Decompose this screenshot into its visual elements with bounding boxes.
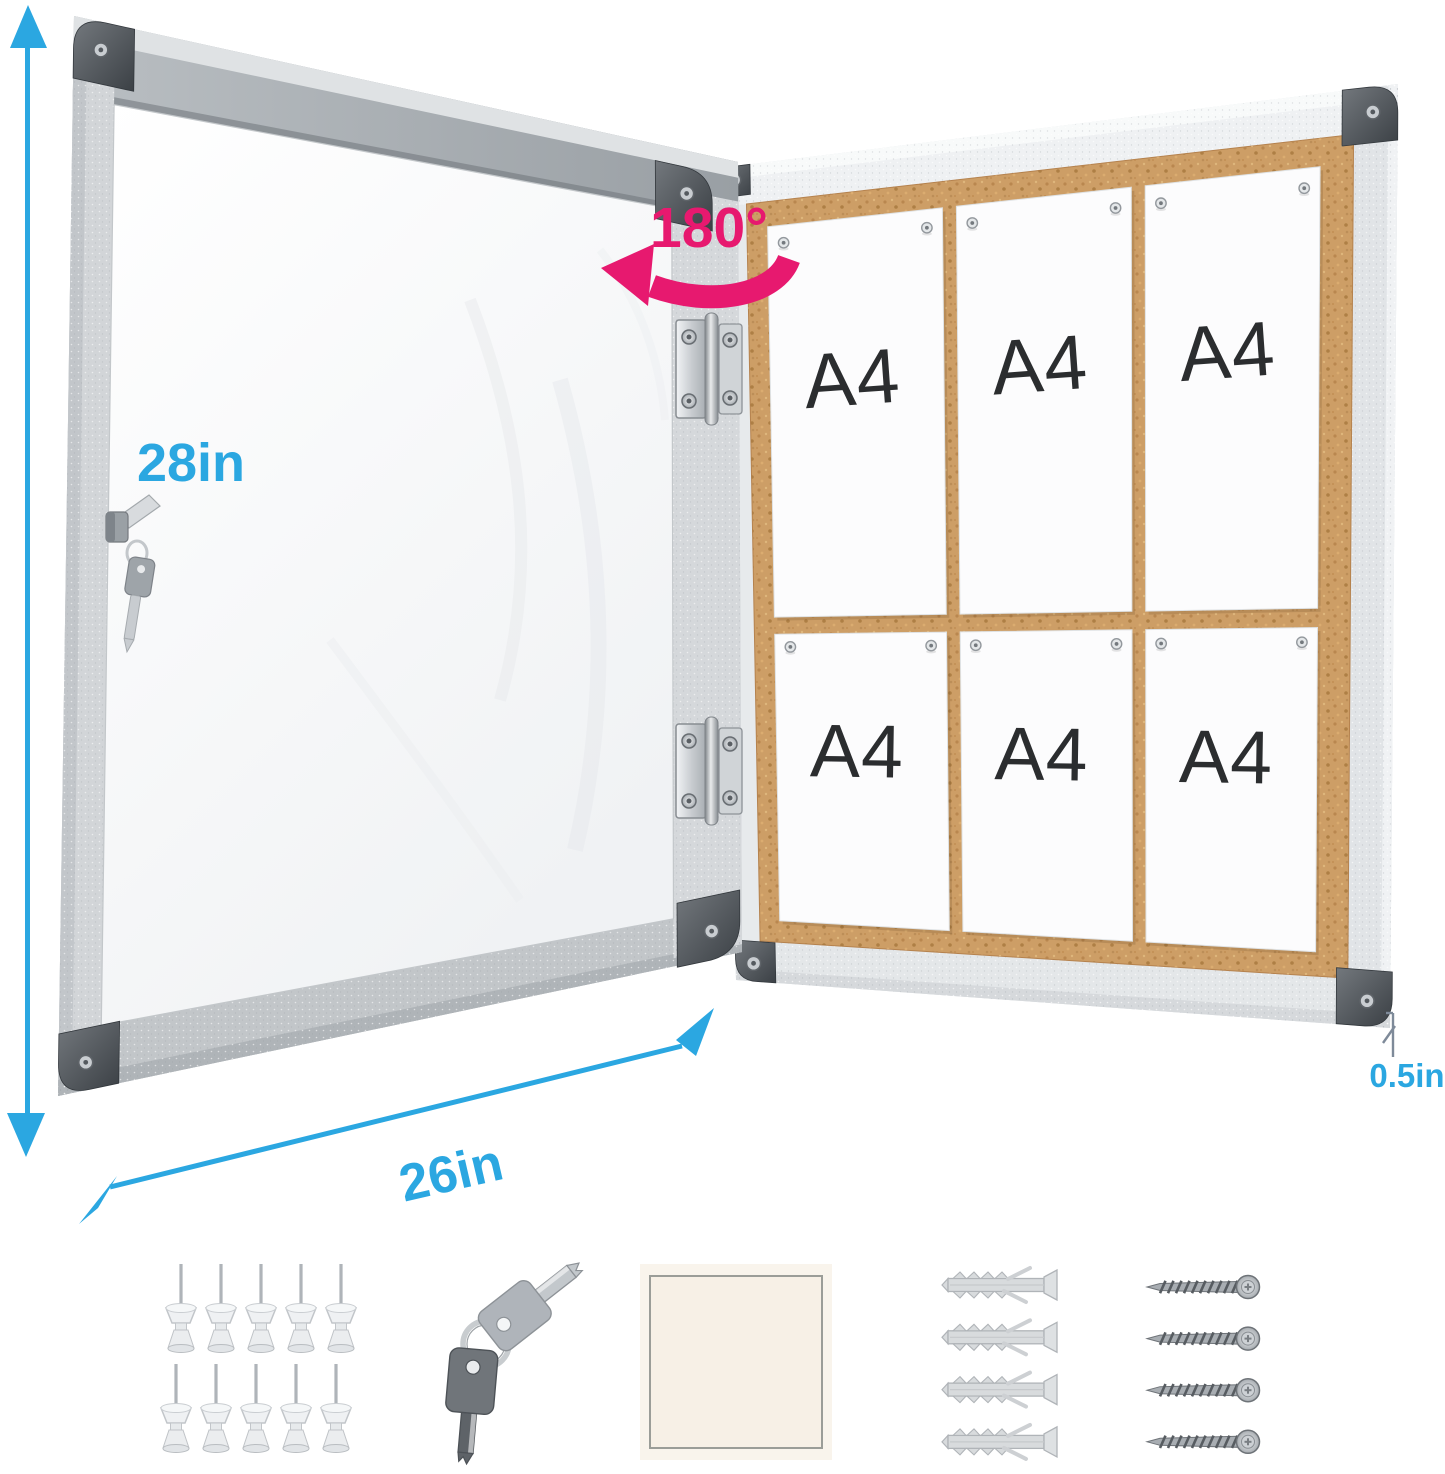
push-pin-icon: [241, 1364, 271, 1453]
wall-anchor-icon: [942, 1268, 1057, 1302]
push-pin-icon: [246, 1264, 276, 1353]
push-pin-icon: [326, 1264, 356, 1353]
arrowhead-left-icon: [79, 1176, 117, 1224]
push-pin-icon: [161, 1364, 191, 1453]
a4-label: A4: [989, 319, 1091, 412]
screw-icon: [1147, 1327, 1260, 1350]
a4-label: A4: [809, 708, 904, 793]
a4-label: A4: [1179, 714, 1274, 799]
push-pin-icon: [201, 1364, 231, 1453]
width-dimension-label: 26in: [394, 1133, 508, 1213]
door-swing-angle-label: 180°: [650, 196, 768, 260]
a4-label: A4: [1176, 305, 1278, 398]
bulletin-board-illustration: A4A4A4A4A4A4 28in 26in 0.5in 180°: [0, 0, 1445, 1474]
hinge: [676, 717, 742, 825]
push-pin-icon: [206, 1264, 236, 1353]
a4-label: A4: [801, 332, 903, 425]
adhesive-pad-icon: [640, 1264, 832, 1460]
depth-dimension-label: 0.5in: [1369, 1057, 1444, 1094]
push-pin-icon: [281, 1364, 311, 1453]
screw-icon: [1147, 1379, 1260, 1402]
wall-anchor-icon: [942, 1425, 1057, 1459]
key-icon: [475, 1246, 595, 1355]
included-accessories: [161, 1246, 1260, 1466]
push-pin-icon: [321, 1364, 351, 1453]
cork-board-panel: A4A4A4A4A4A4: [720, 84, 1398, 1028]
screw-icon: [1147, 1430, 1260, 1453]
glass-door-panel: [58, 16, 742, 1096]
screw-icon: [1147, 1276, 1260, 1299]
wall-anchor-icon: [942, 1373, 1057, 1407]
key-icon: [441, 1347, 499, 1466]
a4-label: A4: [994, 711, 1089, 796]
hinge: [676, 313, 742, 425]
arrowhead-up-icon: [10, 5, 47, 48]
height-dimension-label: 28in: [137, 433, 245, 493]
wall-anchor-icon: [942, 1320, 1057, 1354]
arrowhead-down-icon: [7, 1113, 45, 1157]
arrowhead-right-icon: [676, 1008, 714, 1056]
push-pin-icon: [286, 1264, 316, 1353]
push-pin-icon: [166, 1264, 196, 1353]
product-illustration-page: A4A4A4A4A4A4 28in 26in 0.5in 180°: [0, 0, 1445, 1474]
